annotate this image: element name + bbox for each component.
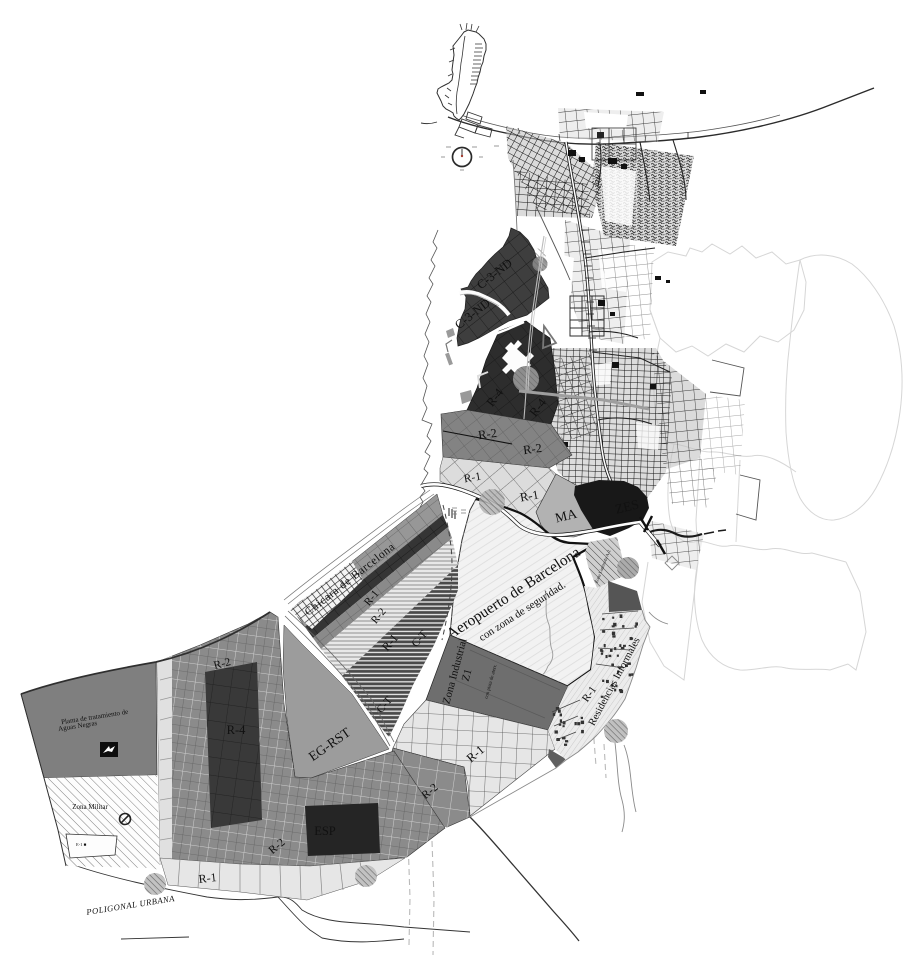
svg-text:Zona Militar: Zona Militar [72, 803, 108, 811]
svg-text:E-1 ■: E-1 ■ [76, 842, 87, 847]
svg-text:R-4: R-4 [227, 723, 247, 737]
svg-text:ESP: ESP [314, 824, 336, 838]
svg-text:R-1: R-1 [198, 870, 217, 886]
svg-text:R-2: R-2 [522, 441, 543, 457]
svg-text:R-2: R-2 [477, 426, 498, 442]
